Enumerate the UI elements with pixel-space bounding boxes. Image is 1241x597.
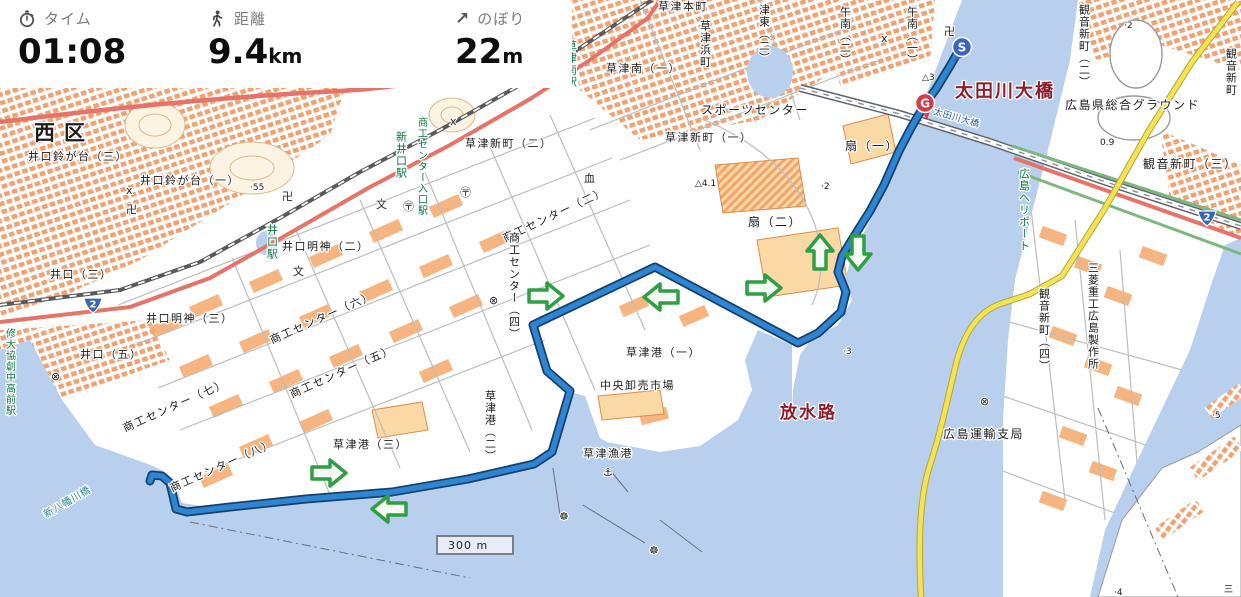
label-town: 午南（二） (839, 6, 852, 66)
map[interactable]: S G 2 2 西区 井口鈴が台（三） 井口鈴が台（一） 井口（三） 井口（五）… (0, 0, 1241, 597)
label-station: 井口駅 (266, 223, 279, 260)
label-town: 商工センター（四） (508, 231, 521, 340)
label-town: 草津新町（二） (465, 136, 553, 150)
temple-icon: 卍 (282, 190, 293, 203)
label-facility: 広島運輸支局 (943, 426, 1024, 441)
stat-ascent: ↗ のぼり 22m (455, 8, 525, 71)
label-town: 井口（三） (50, 267, 113, 281)
label-station: 修大協創中高前駅 (4, 327, 16, 416)
label-station: 新井口駅 (395, 130, 408, 179)
stat-distance-label: 距離 (234, 8, 266, 29)
anchor-icon: ⚓ (603, 466, 613, 479)
start-marker-letter: S (958, 41, 967, 55)
label-town: 観音新町（三） (1143, 156, 1238, 171)
stat-distance: 距離 9.4km (208, 8, 302, 71)
museum-icon: 血 (584, 171, 595, 185)
scale-bar-label: 300 m (448, 539, 488, 552)
police-box-icon: x (126, 184, 133, 197)
elevation-point: ·5 (1212, 411, 1221, 421)
school-icon: 文 (293, 264, 304, 278)
stat-ascent-label: のぼり (477, 8, 525, 29)
label-ward: 西区 (34, 121, 94, 145)
stat-time: タイム 01:08 (18, 8, 126, 71)
up-right-arrow-icon: ↗ (455, 9, 469, 29)
label-town: 扇（一） (845, 138, 899, 153)
activity-stats-panel: タイム 01:08 距離 9.4km ↗ のぼり 22m (0, 0, 572, 88)
elevation-point: ·4 (1114, 588, 1123, 597)
label-town: 草津浜町 (699, 20, 712, 68)
label-town: 井口鈴が台（三） (28, 149, 128, 163)
label-town: 観音新町（四） (1038, 287, 1051, 372)
label-town: 井口鈴が台（一） (140, 173, 240, 187)
label-bridge: 太田川大橋 (955, 80, 1055, 102)
elevation-point: △4.1 (695, 179, 716, 189)
pedestrian-icon (208, 10, 226, 28)
harbor-icon: ☸ (649, 544, 659, 557)
label-town: 井口明神（三） (146, 311, 234, 325)
label-town: 草津港（二） (484, 390, 497, 462)
temple-icon: 卍 (126, 203, 137, 216)
stat-distance-value: 9.4km (208, 35, 302, 71)
label-town: 草津港（三） (333, 438, 408, 451)
stat-time-label: タイム (44, 8, 92, 29)
harbor-icon: ☸ (559, 510, 569, 523)
post-office-icon: 〶 (460, 186, 471, 199)
label-town: 草津港（一） (626, 346, 701, 359)
stopwatch-icon (18, 10, 36, 28)
label-fragment: 三 (1224, 585, 1233, 595)
stat-ascent-value: 22m (455, 35, 525, 71)
label-town: 井口明神（二） (282, 239, 370, 253)
elevation-point: 0.9 (1100, 138, 1115, 148)
police-station-icon: ⊗ (489, 294, 498, 307)
police-box-icon: x (450, 115, 457, 128)
label-town: 井口（五） (80, 347, 143, 361)
label-town: 観音新町 (1225, 47, 1238, 96)
label-town: 観音新町（二） (1078, 3, 1091, 88)
stat-distance-unit: km (268, 44, 302, 68)
fitness-activity-screen: S G 2 2 西区 井口鈴が台（三） 井口鈴が台（一） 井口（三） 井口（五）… (0, 0, 1241, 597)
scale-bar: 300 m (437, 536, 513, 554)
post-office-icon: 〶 (403, 200, 414, 213)
label-town: 津東（二） (758, 4, 771, 64)
elevation-point: △3 (922, 73, 935, 83)
stat-ascent-unit: m (502, 44, 523, 68)
label-facility: 草津漁港 (583, 446, 633, 460)
label-river: 放水路 (779, 402, 837, 423)
label-town: 草津南（一） (606, 62, 681, 75)
elevation-point: ·2 (1124, 21, 1133, 31)
stat-time-value: 01:08 (18, 35, 126, 71)
label-town: 午南（一） (906, 6, 919, 66)
label-facility: 中央卸売市場 (600, 378, 675, 392)
label-town: 草津本町 (658, 0, 708, 13)
label-station: 商工センター入口駅 (416, 116, 428, 216)
label-facility: 広島ヘリポート (1018, 168, 1031, 252)
label-facility: 広島県総合グラウンド (1065, 97, 1200, 112)
police-box-icon: x (881, 32, 888, 45)
route-shield-number: 2 (90, 300, 97, 311)
goal-marker-letter: G (920, 97, 930, 111)
temple-icon: 卍 (944, 25, 955, 38)
label-facility: 三菱重工広島製作所 (1087, 262, 1100, 370)
label-facility: スポーツセンター (701, 103, 809, 117)
label-town: 扇（二） (748, 214, 802, 229)
police-station-icon: ⊗ (51, 370, 60, 383)
label-town: 草津新町（一） (665, 130, 753, 144)
school-icon: 文 (376, 197, 387, 211)
police-station-icon: ⊗ (980, 395, 989, 408)
elevation-point: ·2 (821, 182, 830, 192)
route-shield-number: 2 (1204, 213, 1211, 224)
elevation-point: ·3 (843, 347, 852, 357)
elevation-point: ·55 (250, 183, 264, 193)
